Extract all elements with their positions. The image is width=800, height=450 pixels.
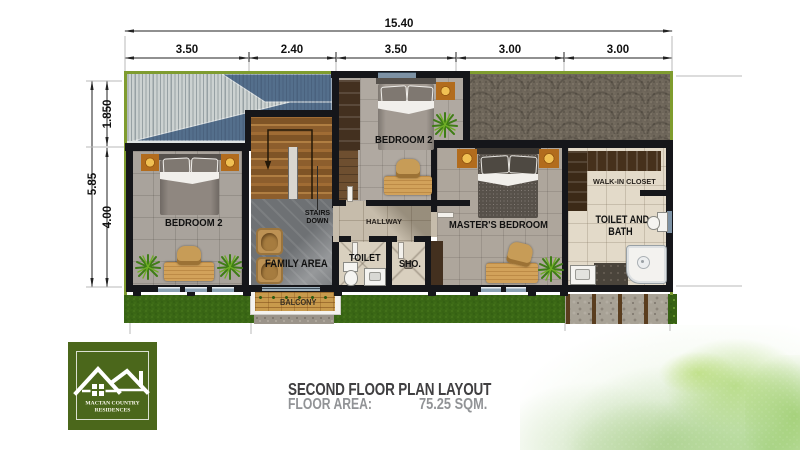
svg-text:4.00: 4.00: [102, 206, 114, 228]
svg-text:5.85: 5.85: [87, 172, 99, 195]
svg-text:2.40: 2.40: [281, 44, 303, 56]
svg-text:MACTAN COUNTRY: MACTAN COUNTRY: [85, 401, 139, 407]
svg-text:15.40: 15.40: [385, 18, 414, 30]
svg-text:RESIDENCES: RESIDENCES: [95, 408, 131, 414]
svg-text:3.00: 3.00: [499, 44, 521, 56]
svg-text:3.50: 3.50: [176, 44, 198, 56]
svg-text:3.00: 3.00: [607, 44, 629, 56]
svg-text:1.850: 1.850: [102, 100, 114, 129]
svg-text:3.50: 3.50: [385, 44, 407, 56]
